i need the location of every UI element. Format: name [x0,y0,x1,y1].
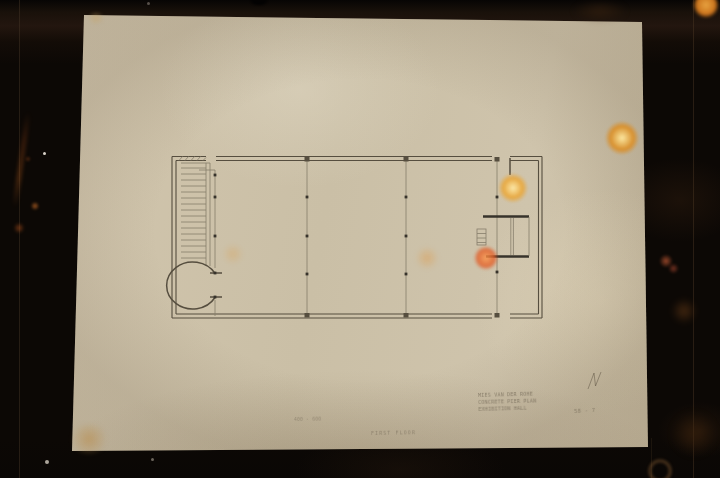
specular-dot [147,2,150,5]
pencil-dimension-note: 400 - 600 [294,416,321,423]
bokeh-light-corner [693,0,719,18]
bokeh-glow [572,0,628,22]
glass-seam-left [19,0,20,478]
bokeh-glow [672,412,716,456]
specular-dot [45,460,49,464]
bokeh-light-red [659,254,673,268]
drawing-sheet [0,0,720,478]
reflection-streak [13,112,29,206]
reflection-glint [25,156,31,162]
case-frame-notch [251,0,267,5]
pencil-note-block: MIES VAN DER ROHE CONCRETE PIER PLAN EXH… [478,390,537,412]
photo-scene: MIES VAN DER ROHE CONCRETE PIER PLAN EXH… [0,0,720,478]
pencil-floor-note: FIRST FLOOR [371,429,416,436]
bokeh-light-red [668,263,679,274]
glass-seam-right-short [651,438,652,478]
glass-seam-right [693,0,694,478]
pencil-sheet-number: 58 - 7 [574,407,596,416]
reflection-glint [31,201,39,211]
specular-dot [151,458,154,461]
specular-dot [43,152,46,155]
